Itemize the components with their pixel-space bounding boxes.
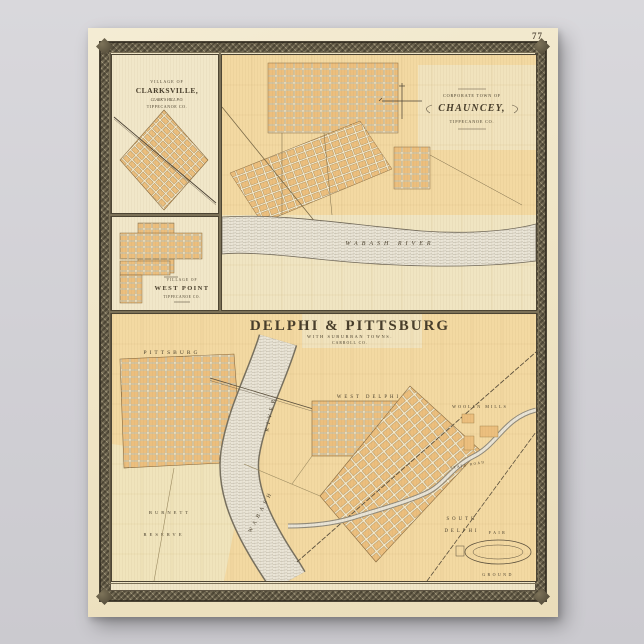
- burnett-reserve-label: RESERVE: [143, 532, 184, 537]
- chauncey-county: TIPPECANOE CO.: [450, 119, 495, 124]
- chauncey-heading: CORPORATE TOWN OF: [443, 93, 501, 98]
- south-delphi-label: SOUTH: [447, 517, 478, 522]
- map-subtitle: WITH SUBURBAN TOWNS.: [307, 334, 393, 339]
- chauncey-map: CORPORATE TOWN OF CHAUNCEY, TIPPECANOE C…: [222, 55, 536, 310]
- inset-title: CLARKSVILLE,: [136, 86, 198, 95]
- delphi-pittsburg-map: DELPHI & PITTSBURG WITH SUBURBAN TOWNS. …: [112, 314, 536, 581]
- river-label: WABASH RIVER: [345, 241, 434, 247]
- mill-block: [464, 436, 474, 450]
- west-point-plat: [120, 275, 142, 303]
- west-point-plat: [120, 261, 170, 275]
- clarksville-inset-panel: VILLAGE OF CLARKSVILLE, CLARK'S HILL P.O…: [111, 54, 219, 214]
- delphi-pittsburg-panel: DELPHI & PITTSBURG WITH SUBURBAN TOWNS. …: [111, 313, 537, 582]
- woolen-mills-label: WOOLEN MILLS: [452, 404, 508, 409]
- border-frame: VILLAGE OF CLARKSVILLE, CLARK'S HILL P.O…: [100, 42, 546, 601]
- fair-ground-label: FAIR: [489, 530, 507, 535]
- west-point-inset-panel: VILLAGE OF WEST POINT TIPPECANOE CO.: [111, 216, 219, 311]
- chauncey-plat: [268, 63, 398, 133]
- inset-heading: VILLAGE OF: [150, 79, 183, 84]
- clarksville-inset-map: VILLAGE OF CLARKSVILLE, CLARK'S HILL P.O…: [112, 55, 218, 213]
- clarksville-plat: [120, 110, 208, 210]
- burnett-reserve-label: BURNETT: [149, 510, 191, 515]
- south-delphi-label: DELPHI: [444, 529, 479, 534]
- chauncey-panel: CORPORATE TOWN OF CHAUNCEY, TIPPECANOE C…: [221, 54, 537, 311]
- chauncey-title: CHAUNCEY,: [438, 103, 505, 114]
- mill-block: [480, 426, 498, 437]
- chauncey-plat: [394, 147, 430, 189]
- inset-county: TIPPECANOE CO.: [163, 295, 200, 299]
- inset-heading: VILLAGE OF: [166, 278, 197, 282]
- west-point-inset-map: VILLAGE OF WEST POINT TIPPECANOE CO.: [112, 217, 218, 310]
- west-point-plat: [120, 233, 202, 259]
- map-title: DELPHI & PITTSBURG: [250, 318, 450, 334]
- west-delphi-label: WEST DELPHI: [337, 395, 401, 400]
- inset-po: CLARK'S HILL P.O.: [151, 97, 184, 102]
- map-sheet: VILLAGE OF CLARKSVILLE, CLARK'S HILL P.O…: [110, 52, 536, 591]
- map-county: CARROLL CO.: [332, 341, 368, 345]
- mill-block: [462, 414, 474, 423]
- inset-county: TIPPECANOE CO.: [147, 104, 187, 109]
- screenshot-stage: 77 VILLAGE OF: [0, 0, 644, 644]
- fair-ground-label: GROUND: [482, 572, 514, 577]
- pittsburg-label: PITTSBURG: [144, 350, 201, 356]
- vintage-map-poster: 77 VILLAGE OF: [88, 28, 558, 617]
- inset-title: WEST POINT: [155, 285, 210, 292]
